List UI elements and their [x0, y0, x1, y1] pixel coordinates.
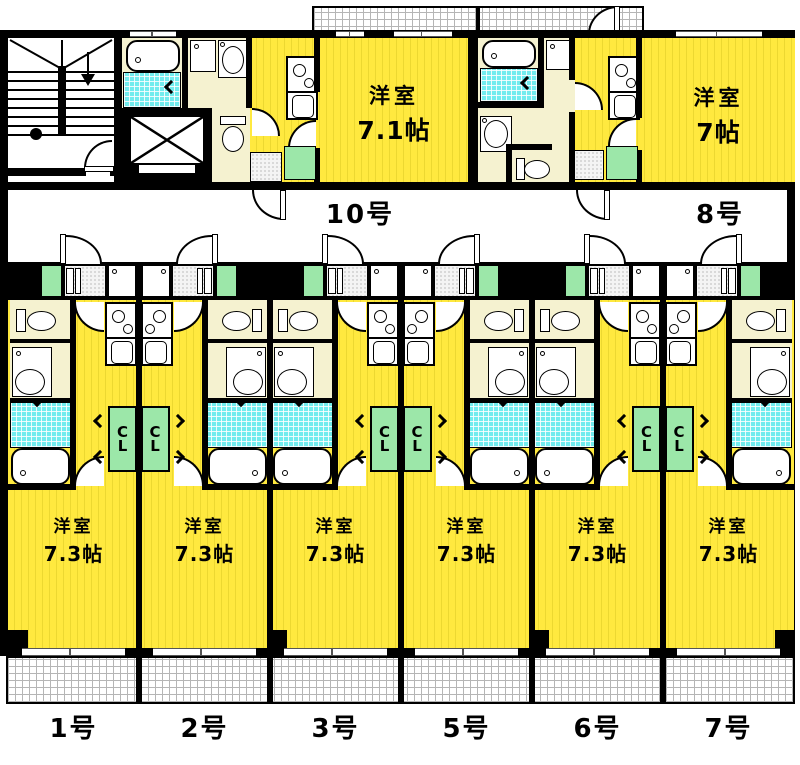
- wall-pier: [8, 630, 28, 648]
- toilet-icon: [551, 311, 580, 331]
- bathtub-icon: [470, 448, 529, 485]
- room-label: 洋室 7.3帖: [532, 512, 663, 567]
- room-size-label: 7.3帖: [8, 538, 139, 567]
- unit-number-label: 6号: [532, 708, 663, 745]
- closet-label: CL: [117, 425, 129, 454]
- burner-icon: [112, 310, 125, 323]
- entry-door-icon: [590, 235, 626, 264]
- kitchen-sink-icon: [669, 341, 691, 364]
- wall: [464, 300, 470, 488]
- room-size-label: 7.3帖: [401, 538, 532, 567]
- window: [677, 648, 780, 656]
- partition-wall: [398, 300, 404, 704]
- room-type-label: 洋室: [401, 512, 532, 537]
- toilet-tank-icon: [16, 309, 26, 332]
- unit-5: CL 洋室 7.3帖 5号: [401, 262, 532, 750]
- shoe-cabinet: [478, 265, 499, 297]
- toilet-icon: [222, 311, 251, 331]
- wall: [594, 300, 600, 488]
- closet: CL: [632, 406, 661, 472]
- bathroom-tile: [272, 402, 334, 448]
- unit-fixtures: CL: [270, 262, 401, 750]
- bathtub-icon: [535, 448, 594, 485]
- unit-7: CL 洋室 7.3帖 7号: [663, 262, 794, 750]
- entry-door-leaf: [322, 234, 328, 264]
- bathtub-icon: [732, 448, 791, 485]
- room-type-label: 洋室: [532, 512, 663, 537]
- wall: [726, 300, 732, 488]
- room-label: 洋室 7.3帖: [401, 512, 532, 567]
- window: [284, 648, 387, 656]
- washbasin-icon: [277, 369, 307, 395]
- window: [415, 648, 518, 656]
- bathtub-icon: [11, 448, 70, 485]
- burner-icon: [415, 310, 428, 323]
- entry-door-panel: [75, 268, 81, 294]
- washer-hookup-icon: [685, 269, 690, 274]
- room-size-label: 7.3帖: [663, 538, 794, 567]
- burner-icon: [374, 310, 387, 323]
- burner-icon: [153, 310, 166, 323]
- washer-hookup-icon: [161, 269, 166, 274]
- wall: [464, 484, 532, 490]
- bathroom-tile: [534, 402, 596, 448]
- unit-number-label: 2号: [139, 708, 270, 745]
- room-size-label: 7.3帖: [270, 538, 401, 567]
- counter-divider: [405, 337, 433, 339]
- faucet-icon: [278, 351, 283, 356]
- unit-fixtures: CL: [532, 262, 663, 750]
- entry-door-panel: [590, 268, 598, 294]
- wall: [8, 484, 76, 490]
- wall-pier: [267, 630, 287, 648]
- kitchen-unit: [403, 302, 435, 366]
- unit-number-label: 5号: [401, 708, 532, 745]
- wall: [202, 484, 270, 490]
- entry-door-panel: [599, 268, 605, 294]
- partition-wall: [136, 300, 142, 704]
- room-size-label: 7.3帖: [139, 538, 270, 567]
- room-type-label: 洋室: [270, 512, 401, 537]
- window: [22, 648, 125, 656]
- wall: [270, 484, 338, 490]
- shoe-cabinet: [216, 265, 237, 297]
- burner-icon: [677, 310, 690, 323]
- kitchen-sink-icon: [635, 341, 657, 364]
- faucet-icon: [16, 351, 21, 356]
- shoe-cabinet: [565, 265, 586, 297]
- kitchen-sink-icon: [111, 341, 133, 364]
- kitchen-sink-icon: [145, 341, 167, 364]
- toilet-icon: [484, 311, 513, 331]
- entry-door-leaf: [736, 234, 742, 264]
- toilet-tank-icon: [776, 309, 786, 332]
- faucet-icon: [519, 351, 524, 356]
- unit-2: CL 洋室 7.3帖 2号: [139, 262, 270, 750]
- window: [546, 648, 649, 656]
- closet: CL: [141, 406, 170, 472]
- toilet-icon: [289, 311, 318, 331]
- entry-door-panel: [197, 268, 203, 294]
- room-type-label: 洋室: [663, 512, 794, 537]
- washer-hookup-icon: [636, 269, 641, 274]
- entry-door-panel: [328, 268, 336, 294]
- room-size-label: 7.3帖: [532, 538, 663, 567]
- burner-icon: [669, 324, 679, 334]
- bathroom-tile: [468, 402, 530, 448]
- entry-door-icon: [700, 235, 736, 264]
- entry-door-leaf: [60, 234, 66, 264]
- faucet-icon: [540, 351, 545, 356]
- kitchen-unit: [629, 302, 661, 366]
- toilet-icon: [746, 311, 775, 331]
- shoe-cabinet: [303, 265, 324, 297]
- faucet-icon: [257, 351, 262, 356]
- closet: CL: [108, 406, 137, 472]
- bathtub-icon: [208, 448, 267, 485]
- burner-icon: [145, 324, 155, 334]
- counter-divider: [631, 337, 659, 339]
- wall-pier: [529, 630, 549, 648]
- washbasin-icon: [539, 369, 569, 395]
- bathroom-tile: [730, 402, 792, 448]
- washer-hookup-icon: [112, 269, 117, 274]
- toilet-tank-icon: [540, 309, 550, 332]
- room-type-label: 洋室: [8, 512, 139, 537]
- closet-label: CL: [379, 425, 391, 454]
- room-label: 洋室 7.3帖: [270, 512, 401, 567]
- entry-door-panel: [728, 268, 736, 294]
- entry-door-icon: [328, 235, 364, 264]
- unit-fixtures: CL: [139, 262, 270, 750]
- closet: CL: [403, 406, 432, 472]
- washbasin-icon: [233, 369, 263, 395]
- room-type-label: 洋室: [139, 512, 270, 537]
- entry-door-leaf: [212, 234, 218, 264]
- closet-label: CL: [674, 425, 686, 454]
- bathroom-tile: [206, 402, 268, 448]
- wall: [202, 300, 208, 488]
- faucet-icon: [781, 351, 786, 356]
- unit-1: CL 洋室 7.3帖 1号: [8, 262, 139, 750]
- closet-label: CL: [150, 425, 162, 454]
- unit-number-label: 7号: [663, 708, 794, 745]
- toilet-tank-icon: [514, 309, 524, 332]
- wall: [332, 300, 338, 488]
- entry-door-panel: [204, 268, 212, 294]
- washbasin-icon: [15, 369, 45, 395]
- unit-fixtures: CL: [8, 262, 139, 750]
- kitchen-unit: [665, 302, 697, 366]
- bathtub-icon: [273, 448, 332, 485]
- counter-divider: [667, 337, 695, 339]
- burner-icon: [385, 324, 395, 334]
- closet: CL: [665, 406, 694, 472]
- burner-icon: [123, 324, 133, 334]
- burner-icon: [636, 310, 649, 323]
- washer-hookup-icon: [374, 269, 379, 274]
- room-label: 洋室 7.3帖: [663, 512, 794, 567]
- wall: [532, 484, 600, 490]
- washbasin-icon: [495, 369, 525, 395]
- kitchen-unit: [367, 302, 399, 366]
- unit-number-label: 1号: [8, 708, 139, 745]
- room-label: 洋室 7.3帖: [139, 512, 270, 567]
- floor-plan: 洋室 7.1帖: [0, 0, 800, 765]
- entry-door-panel: [66, 268, 74, 294]
- unit-6: CL 洋室 7.3帖 6号: [532, 262, 663, 750]
- unit-3: CL 洋室 7.3帖 3号: [270, 262, 401, 750]
- unit-fixtures: CL: [401, 262, 532, 750]
- entry-door-icon: [438, 235, 474, 264]
- partition-wall: [660, 300, 666, 704]
- entry-door-panel: [459, 268, 465, 294]
- closet-label: CL: [641, 425, 653, 454]
- toilet-tank-icon: [252, 309, 262, 332]
- window: [153, 648, 256, 656]
- counter-divider: [143, 337, 171, 339]
- bathroom-tile: [10, 402, 72, 448]
- entry-door-leaf: [584, 234, 590, 264]
- kitchen-unit: [141, 302, 173, 366]
- closet-label: CL: [412, 425, 424, 454]
- entry-door-icon: [66, 235, 102, 264]
- wall: [726, 484, 794, 490]
- room-label: 洋室 7.3帖: [8, 512, 139, 567]
- counter-divider: [369, 337, 397, 339]
- shoe-cabinet: [740, 265, 761, 297]
- toilet-tank-icon: [278, 309, 288, 332]
- toilet-icon: [27, 311, 56, 331]
- entry-door-leaf: [474, 234, 480, 264]
- wall: [70, 300, 76, 488]
- counter-divider: [107, 337, 135, 339]
- unit-number-label: 3号: [270, 708, 401, 745]
- burner-icon: [647, 324, 657, 334]
- entry-door-icon: [176, 235, 212, 264]
- closet: CL: [370, 406, 399, 472]
- kitchen-sink-icon: [407, 341, 429, 364]
- entry-door-panel: [466, 268, 474, 294]
- washbasin-icon: [757, 369, 787, 395]
- burner-icon: [407, 324, 417, 334]
- entry-door-panel: [337, 268, 343, 294]
- kitchen-unit: [105, 302, 137, 366]
- washer-hookup-icon: [423, 269, 428, 274]
- kitchen-sink-icon: [373, 341, 395, 364]
- wall-pier: [775, 630, 795, 648]
- entry-door-panel: [721, 268, 727, 294]
- unit-fixtures: CL: [663, 262, 794, 750]
- shoe-cabinet: [41, 265, 62, 297]
